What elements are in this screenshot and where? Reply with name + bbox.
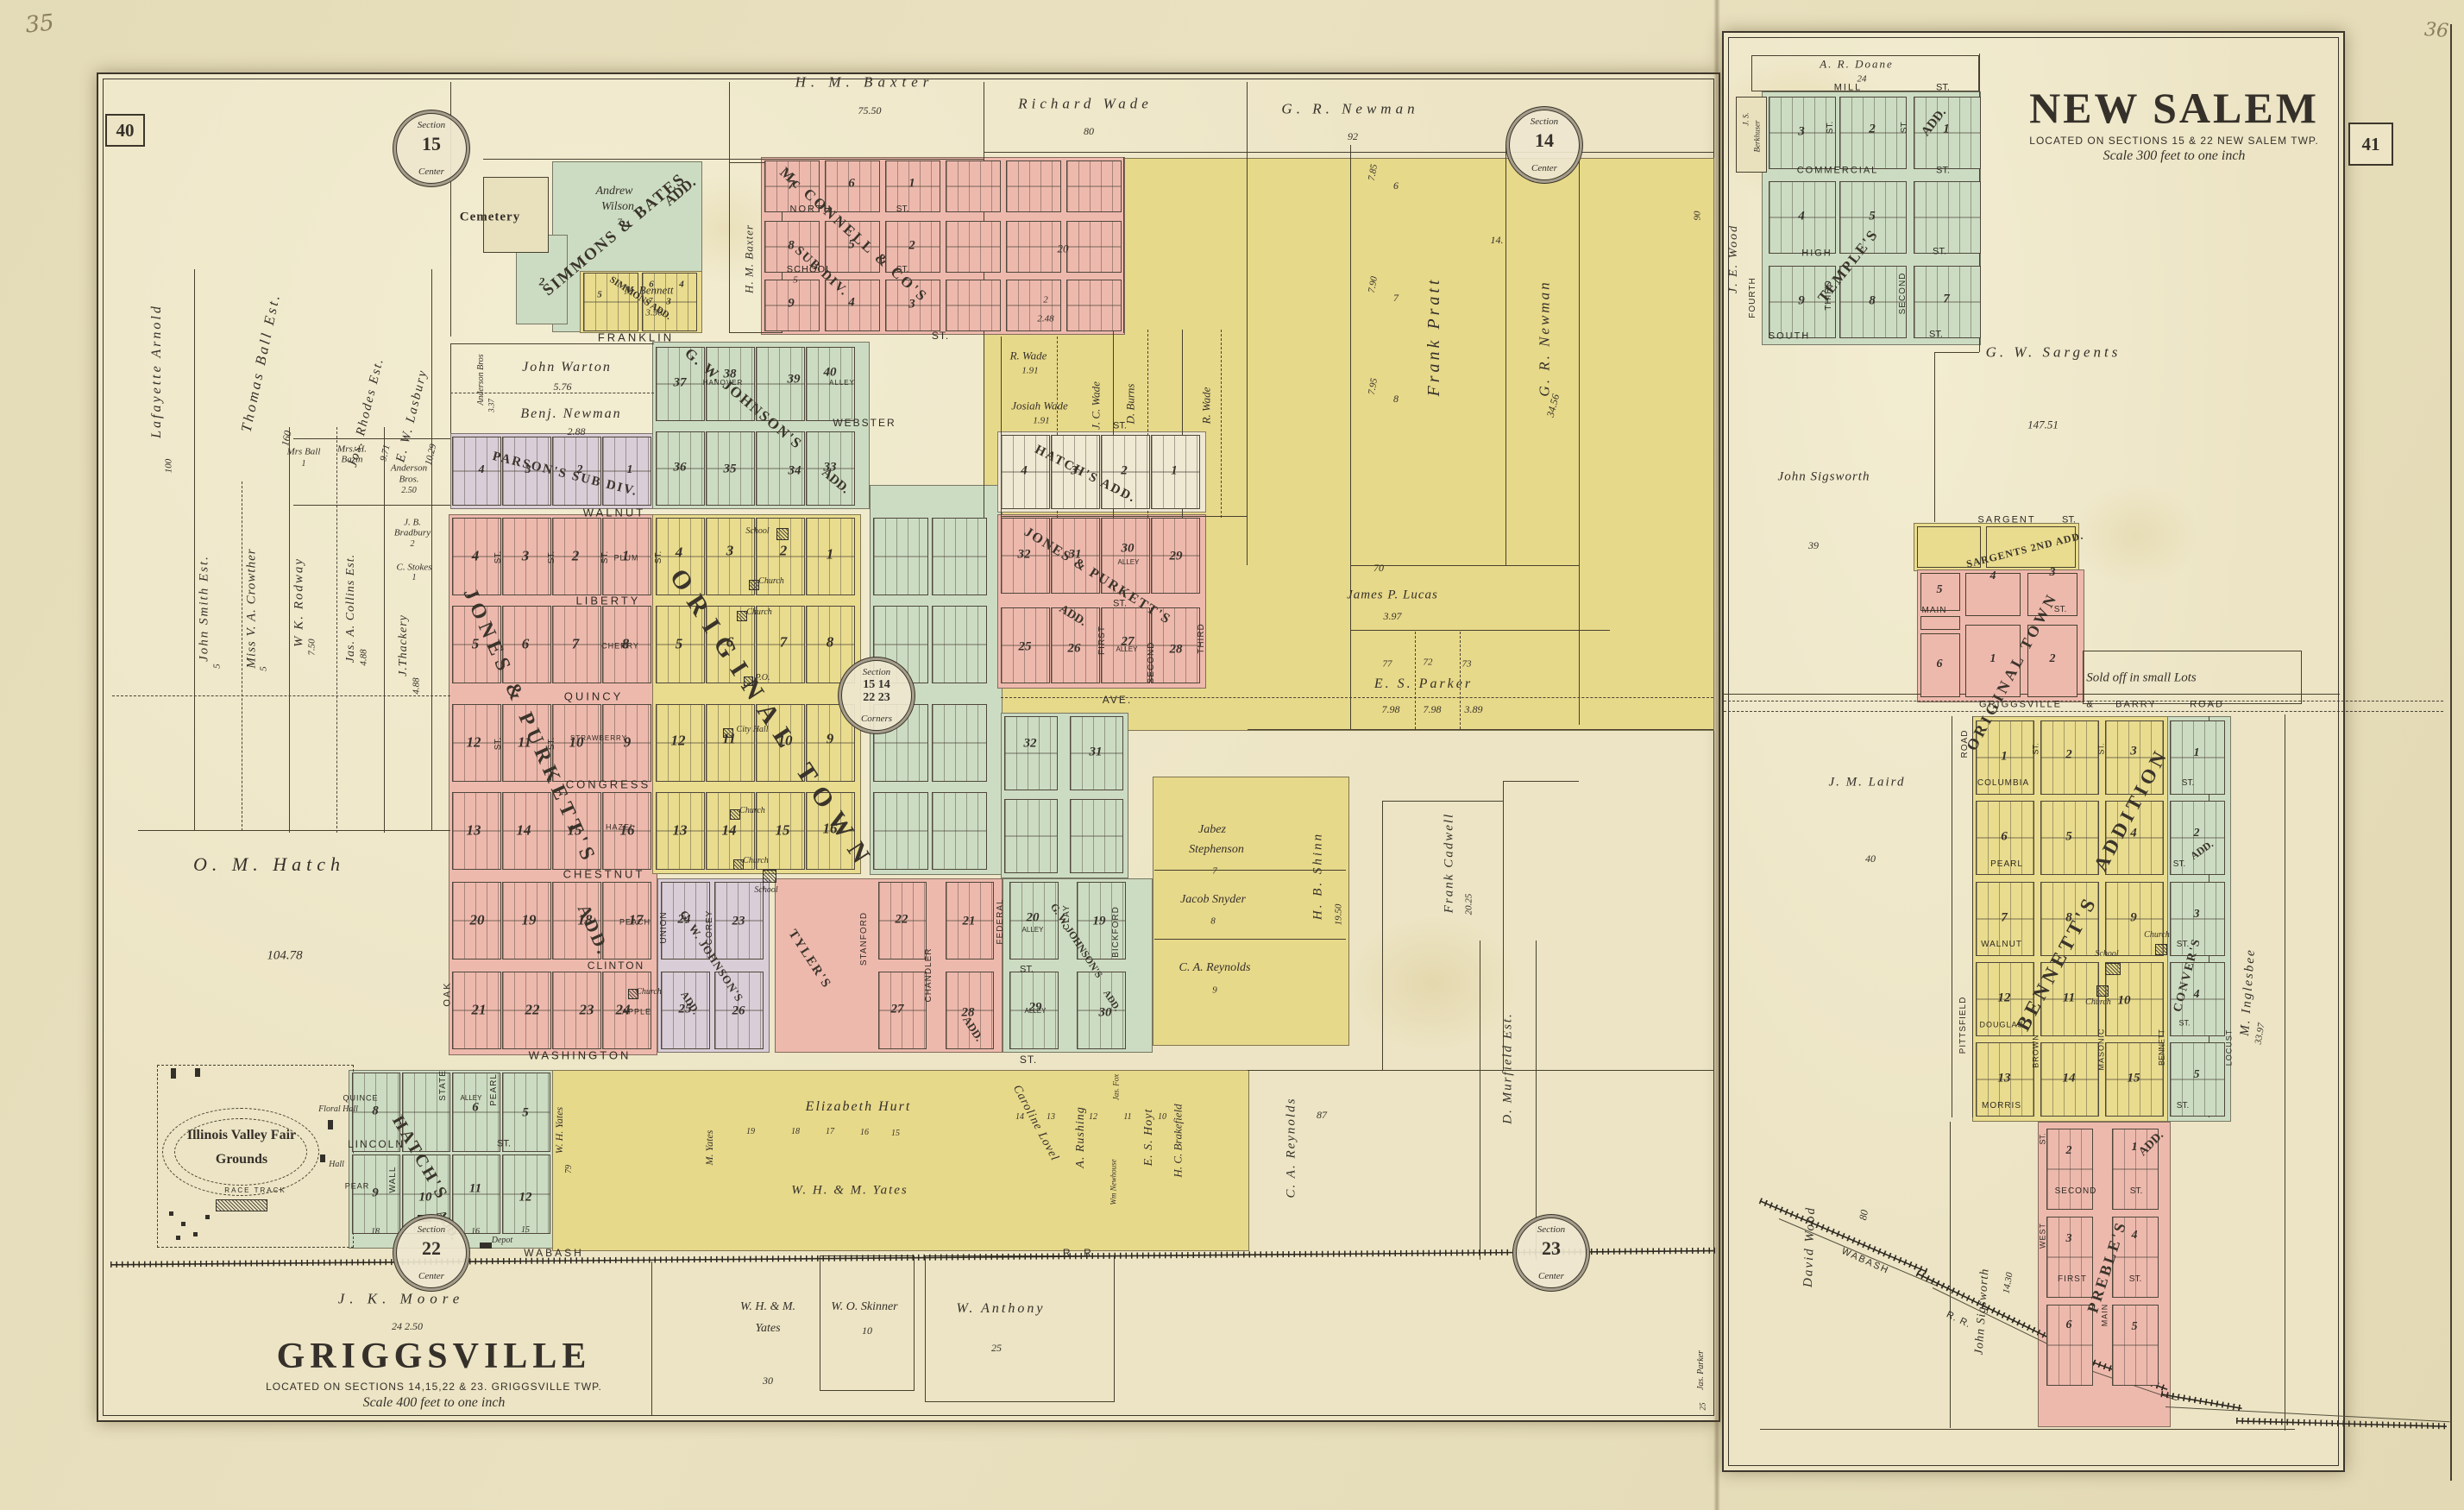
annotation-label: Bradbury <box>394 529 431 538</box>
boundary-line <box>1934 352 1935 522</box>
boundary-line <box>1724 711 2443 713</box>
parcel-berkhuser-parcel <box>1736 97 1767 173</box>
street-label: WEST <box>2040 1223 2047 1249</box>
annotation-label: Church <box>739 807 765 815</box>
street-label: ST. <box>655 551 663 563</box>
blocks-parsons <box>452 437 501 506</box>
block-number: 8 <box>372 1105 379 1118</box>
blocks-preble <box>2046 1217 2093 1298</box>
block-number: 4 <box>479 464 485 476</box>
block-number: 8 <box>1869 295 1876 308</box>
block-number: 5 <box>472 637 480 651</box>
boundary-line <box>1351 630 1610 631</box>
block-number: 23 <box>732 915 745 928</box>
owner-label: Yates <box>755 1323 780 1335</box>
block-number: 8 <box>827 635 834 650</box>
acreage-label: 12 <box>1089 1113 1097 1122</box>
street-label: STATE <box>439 1070 448 1101</box>
block-number: 1 <box>2001 751 2008 764</box>
acreage-label: 4.88 <box>360 649 369 665</box>
acreage-label: 90 <box>1694 211 1703 221</box>
block-number: 30 <box>1122 543 1135 556</box>
blocks-preble <box>2046 1305 2093 1386</box>
acreage-label: 5.76 <box>554 381 572 392</box>
street-label: PITTSFIELD <box>1959 997 1968 1054</box>
boundary-line <box>1972 716 1973 1117</box>
street-label: MORRIS <box>1982 1102 2021 1110</box>
acreage-label: 1.91 <box>1033 417 1049 426</box>
boundary-line <box>1221 330 1223 518</box>
acreage-label: 13 <box>1047 1113 1055 1122</box>
section-marker: Section15Center <box>396 113 467 184</box>
block-number: 9 <box>1798 295 1805 308</box>
blocks-preble <box>2046 1129 2093 1210</box>
handwritten-folio-right: 36 <box>2423 21 2448 41</box>
annotation-label: Mrs. H. <box>337 445 367 455</box>
owner-label: A. Rushing <box>1075 1106 1087 1167</box>
blocks-mcconnell <box>946 221 1001 273</box>
street-label: ST. <box>601 551 610 563</box>
acreage-label: 25 <box>991 1343 1002 1353</box>
boundary-line <box>1934 352 1979 353</box>
griggsville-subtitle: LOCATED ON SECTIONS 14,15,22 & 23. GRIGG… <box>266 1381 602 1393</box>
owner-label: Benj. Newman <box>520 407 621 421</box>
page-trim-line <box>2450 24 2452 1481</box>
block-number: 4 <box>1021 465 1028 478</box>
owner-label: J. C. Wade <box>1091 381 1102 430</box>
acreage-label: 2.88 <box>568 426 586 437</box>
block-number: 3 <box>2066 1233 2072 1245</box>
street-label: ST. <box>896 205 908 214</box>
owner-label: Frank Cadwell <box>1443 813 1456 913</box>
section-marker-text: Section <box>397 120 466 130</box>
street-label: STANFORD <box>860 912 869 966</box>
block-number: 38 <box>724 368 737 381</box>
blocks-mcconnell <box>946 160 1001 212</box>
block-number: 9 <box>624 735 632 750</box>
block-number: 12 <box>519 1192 532 1205</box>
acreage-label: 147.51 <box>2027 419 2059 431</box>
building-marker <box>216 1199 267 1211</box>
street-label: HIGH <box>1801 249 1832 259</box>
owner-label: R. Wade <box>1201 387 1212 425</box>
section-marker-text: 23 <box>1517 1237 1586 1260</box>
block-number: 11 <box>2063 992 2075 1005</box>
owner-label: M. Yates <box>704 1130 714 1166</box>
section-marker-text: Section <box>1517 1224 1586 1235</box>
street-label: ST. <box>2062 516 2076 525</box>
street-label: MAIN <box>1922 607 1947 615</box>
acreage-label: 79 <box>565 1165 574 1173</box>
block-number: 27 <box>1122 636 1135 649</box>
street-label: FRANKLIN <box>598 332 674 343</box>
building-solid <box>193 1232 198 1236</box>
blocks-mcconnell <box>946 280 1001 331</box>
owner-label: Jacob Snyder <box>1180 894 1246 906</box>
street-label: ST. <box>2130 1187 2142 1196</box>
boundary-line <box>112 695 450 697</box>
block-number: 14 <box>722 823 737 838</box>
block-number: 15 <box>776 823 790 838</box>
block-number: 22 <box>525 1003 540 1017</box>
acreage-label: 75.50 <box>858 105 882 116</box>
block-number: 9 <box>2130 912 2137 925</box>
boundary-line <box>194 269 195 830</box>
block-number: 4 <box>676 545 683 560</box>
owner-label: H. M. Baxter <box>744 224 755 293</box>
acreage-label: 14. <box>1491 235 1504 245</box>
section-marker-text: 14 <box>1510 129 1579 152</box>
boundary-line <box>1123 157 1124 333</box>
owner-label: H. B. Shinn <box>1312 832 1325 920</box>
boundary-line <box>1503 781 1579 782</box>
street-label: QUINCE <box>343 1095 378 1103</box>
place-label: Cemetery <box>460 211 520 224</box>
annotation-label: City Hall <box>737 726 769 734</box>
acreage-label: 19.50 <box>1335 904 1344 926</box>
acreage-label: 39 <box>1808 540 1819 551</box>
block-number: 11 <box>518 735 531 750</box>
annotation-label: Church <box>743 857 769 865</box>
acreage-label: 104.78 <box>267 950 302 963</box>
owner-label: Miss V. A. Crowther <box>246 548 259 668</box>
acreage-label: 70 <box>1373 563 1384 573</box>
section-marker-text: 15 <box>397 133 466 155</box>
block-number: 3 <box>666 298 671 307</box>
street-label: BICKFORD <box>1112 906 1121 958</box>
acreage-label: 5 <box>260 666 269 671</box>
building-solid <box>320 1155 325 1162</box>
annotation-label: Floral Hall <box>318 1105 358 1114</box>
block-number: 5 <box>1937 584 1943 596</box>
boundary-line <box>1760 1429 2295 1430</box>
building-solid <box>176 1236 180 1240</box>
street-label: CHANDLER <box>925 947 933 1002</box>
owner-label: C. A. Reynolds <box>1285 1098 1298 1199</box>
owner-label: Jas. A. Collins Est. <box>345 554 357 663</box>
street-label: ST. <box>2182 779 2194 788</box>
acreage-label: 7 <box>1212 867 1217 877</box>
street-label: CHESTNUT <box>563 869 645 880</box>
annotation-label: C. Stokes <box>397 563 432 573</box>
street-label: PEAR <box>345 1183 370 1191</box>
block-number: 13 <box>467 823 481 838</box>
page-gutter <box>1713 0 1720 1510</box>
block-number: 13 <box>673 823 688 838</box>
block-number: 1 <box>1990 653 1996 665</box>
place-label: Grounds <box>216 1153 267 1167</box>
street-label: FIRST <box>1098 626 1107 655</box>
block-number: 24 <box>678 914 691 927</box>
block-number: 36 <box>674 462 687 475</box>
street-label: ST. <box>1826 122 1835 134</box>
paper-stain <box>1346 915 1518 1053</box>
street-label: ST. <box>1113 422 1127 431</box>
street-label: PEARL <box>490 1073 499 1106</box>
acreage-label: 92 <box>1348 131 1358 142</box>
annotation-label: Anderson Bros <box>477 354 486 405</box>
building-marker <box>2096 985 2109 997</box>
block-number: 1 <box>2132 1142 2138 1154</box>
owner-label: J. K. Moore <box>338 1292 465 1306</box>
street-label: ST. <box>1936 167 1950 176</box>
acreage-label: 73 <box>1462 660 1472 670</box>
section-marker-text: Section <box>842 667 911 677</box>
acreage-label: 6 <box>1393 180 1399 191</box>
acreage-label: 4.88 <box>412 677 422 694</box>
section-marker: Section23Center <box>1516 1217 1587 1288</box>
owner-label: W. H. & M. <box>740 1301 795 1313</box>
block-number: 2 <box>2066 1145 2072 1157</box>
block-number: 7 <box>2001 912 2008 925</box>
boundary-line <box>1950 1122 1951 1428</box>
place-label: Illinois Valley Fair <box>187 1129 296 1142</box>
section-marker-text: Section <box>397 1224 466 1235</box>
acreage-label: 2.48 <box>1037 315 1053 324</box>
section-marker: Section22Center <box>396 1217 467 1288</box>
acreage-label: 1.91 <box>1021 367 1038 376</box>
block-number: 2 <box>780 544 788 558</box>
block-number: 3 <box>2050 567 2056 579</box>
block-number: 22 <box>896 914 908 927</box>
annotation-label: J. S. <box>1743 112 1751 125</box>
annotation-label: Hall <box>329 1161 344 1169</box>
owner-label: W. H. Yates <box>554 1107 564 1154</box>
block-number: 6 <box>649 280 654 290</box>
section-marker-text: 22 <box>397 1237 466 1260</box>
block-number: 4 <box>472 549 480 563</box>
block-number: 15 <box>568 823 582 838</box>
acreage-label: 72 <box>1424 658 1433 668</box>
boundary-line <box>293 505 450 506</box>
boundary-line <box>1247 82 1248 565</box>
street-label: WASHINGTON <box>529 1050 632 1061</box>
owner-label: H. C. Brakefield <box>1172 1104 1184 1177</box>
acreage-label: 2 <box>1043 296 1048 305</box>
owner-label: G. W. Sargents <box>1986 345 2121 360</box>
block-number: 4 <box>2132 1230 2138 1242</box>
boundary-line <box>1248 729 1713 730</box>
owner-label: E. S. Hoyt <box>1143 1109 1155 1167</box>
block-number: 12 <box>1998 992 2011 1005</box>
block-number: 40 <box>824 367 837 380</box>
griggsville-title: GRIGGSVILLE <box>266 1336 602 1377</box>
annotation-label: 2 <box>411 540 415 549</box>
block-number: 20 <box>470 913 485 928</box>
owner-label: G. R. Newman <box>1281 102 1418 116</box>
new-salem-title: NEW SALEM <box>2010 83 2338 133</box>
block-number: 7 <box>1943 293 1950 306</box>
block-number: 17 <box>629 913 644 928</box>
boundary-line <box>431 269 432 830</box>
block-number: 20 <box>1027 912 1040 925</box>
block-number: 1 <box>908 178 915 191</box>
block-number: 2 <box>577 464 583 476</box>
acreage-label: 77 <box>1383 660 1392 670</box>
block-number: 14 <box>2063 1073 2076 1085</box>
block-number: 5 <box>522 1107 529 1120</box>
block-number: 8 <box>622 637 630 651</box>
street-label: RACE TRACK <box>224 1187 286 1194</box>
annotation-label: Bros. <box>399 475 418 485</box>
owner-label: Stephenson <box>1189 844 1244 856</box>
acreage-label: 8 <box>1393 393 1399 404</box>
block-number: 4 <box>679 280 684 290</box>
block-number: 16 <box>823 821 838 836</box>
street-label: & <box>2086 701 2092 710</box>
building-solid <box>171 1068 176 1079</box>
block-number: 21 <box>472 1003 487 1017</box>
street-label: ST. <box>494 738 503 750</box>
block-number: 18 <box>578 913 593 928</box>
blocks-temple <box>1914 181 1981 254</box>
block-number: 4 <box>848 297 855 310</box>
street-label: ST. <box>2129 1275 2141 1284</box>
block-number: 2 <box>539 276 545 287</box>
block-number: 7 <box>780 635 788 650</box>
street-label: ALLEY <box>1022 927 1044 934</box>
street-label: ST. <box>932 330 949 341</box>
boundary-line <box>1505 145 1506 565</box>
owner-label: W. O. Skinner <box>831 1301 897 1313</box>
blocks-mcconnell <box>1066 280 1122 331</box>
section-marker-text: Center <box>1517 1271 1586 1281</box>
street-label: ST. <box>2040 1133 2047 1144</box>
annotation-label: School <box>745 527 769 536</box>
street-label: SARGENT <box>1977 516 2035 525</box>
block-number: 32 <box>1018 549 1031 562</box>
acreage-label: 7.50 <box>308 639 317 655</box>
owner-label: J. M. Laird <box>1829 777 1906 790</box>
street-label: ST. <box>1901 121 1909 133</box>
owner-label: W. Anthony <box>957 1302 1046 1316</box>
building-marker <box>763 870 776 883</box>
boundary-line <box>242 481 243 831</box>
owner-label: Jabez <box>1198 824 1226 836</box>
annotation-label: 2.50 <box>401 487 417 495</box>
block-number: 33 <box>824 462 837 475</box>
owner-label: W. H. & M. Yates <box>791 1185 908 1198</box>
boundary-line <box>1536 941 1537 1260</box>
acreage-label: 10 <box>862 1325 872 1336</box>
atlas-page: 35 36 40 41 GRIGGSVILLE LOCATED ON SECTI… <box>0 0 2464 1510</box>
block-number: 16 <box>620 823 635 838</box>
street-label: PEARL <box>1990 860 2023 869</box>
block-number: 2 <box>2050 653 2056 665</box>
block-number: 1 <box>2194 747 2200 759</box>
block-number: 31 <box>1069 549 1082 562</box>
owner-label: Elizabeth Hurt <box>806 1100 912 1114</box>
acreage-label: 24 2.50 <box>392 1321 423 1331</box>
street-label: CONGRESS <box>566 779 651 790</box>
blocks-mid-green <box>932 704 987 782</box>
blocks-below-ave <box>1004 716 1058 790</box>
block-number: 8 <box>2065 912 2072 925</box>
street-label: SECOND <box>1147 642 1156 684</box>
acreage-label: 40 <box>1865 853 1876 864</box>
owner-label: John Sigsworth <box>1778 471 1870 484</box>
owner-label: C. A. Reynolds <box>1179 962 1251 974</box>
block-number: 32 <box>1024 738 1037 751</box>
street-label: R. R. <box>1063 1248 1099 1258</box>
annotation-label: P.O. <box>755 674 770 683</box>
acreage-label: 10 <box>1158 1113 1166 1122</box>
street-label: ST. <box>2098 743 2106 754</box>
block-number: 37 <box>674 377 687 390</box>
section-marker-text: 15 1422 23 <box>842 678 911 705</box>
section-marker-text: Center <box>1510 163 1579 173</box>
street-label: ST. <box>1020 1054 1037 1065</box>
owner-label: O. M. Hatch <box>193 855 345 874</box>
block-number: 29 <box>1170 551 1183 563</box>
street-label: GRIGGSVILLE <box>1979 701 2062 710</box>
street-label: FEDERAL <box>996 898 1005 944</box>
acreage-label: 30 <box>763 1375 773 1386</box>
annotation-label: Wm Newhouse <box>1110 1159 1118 1205</box>
building-marker <box>2155 944 2167 955</box>
block-number: 4 <box>2194 989 2200 1001</box>
acreage-label: 16 <box>860 1129 869 1137</box>
block-number: 28 <box>962 1007 975 1020</box>
boundary-line <box>1480 941 1480 1260</box>
building-solid <box>195 1068 200 1077</box>
annotation-label: Bazin <box>341 456 362 465</box>
street-label: BROWN <box>2033 1034 2040 1068</box>
acreage-label: 80 <box>1084 126 1094 136</box>
blocks-mid-green <box>932 518 987 595</box>
block-number: 10 <box>2118 995 2131 1008</box>
annotation-label: Church <box>746 608 772 617</box>
boundary-line <box>1154 939 1346 940</box>
street-label: BENNETT <box>2159 1029 2166 1066</box>
owner-label: John Smith Est. <box>198 555 211 662</box>
street-label: ROAD <box>2190 701 2224 710</box>
block-number: 2 <box>908 240 915 253</box>
owner-label: Richard Wade <box>1018 97 1153 111</box>
acreage-label: 15 <box>521 1226 530 1235</box>
boundary-line <box>1351 565 1579 566</box>
new-salem-title-block: NEW SALEM LOCATED ON SECTIONS 15 & 22 NE… <box>2010 83 2338 164</box>
acreage-label: 100 <box>165 459 174 474</box>
blocks-below-ave <box>1004 799 1058 873</box>
acreage-label: 3.89 <box>1465 704 1483 714</box>
annotation-label: J. B. <box>404 519 421 528</box>
blocks-preble <box>2112 1305 2159 1386</box>
block-number: 5 <box>2132 1321 2138 1333</box>
annotation-label: Jas. Parker <box>1697 1350 1706 1390</box>
block-number: 1 <box>622 549 630 563</box>
boundary-line <box>984 152 1713 153</box>
block-number: 7 <box>572 637 580 651</box>
block-number: 26 <box>1068 643 1081 656</box>
owner-label: A. R. Doane <box>1820 59 1894 70</box>
street-label: ST. <box>2177 1102 2189 1110</box>
block-number: 9 <box>827 732 834 746</box>
annotation-label: Church <box>2144 931 2170 940</box>
acreage-label: 15 <box>891 1129 900 1138</box>
street-label: LIBERTY <box>576 595 641 607</box>
page-number-left: 40 <box>105 114 145 147</box>
street-label: OAK <box>443 981 453 1006</box>
owner-label: H. M. Baxter <box>795 75 934 90</box>
griggsville-title-block: GRIGGSVILLE LOCATED ON SECTIONS 14,15,22… <box>266 1336 602 1411</box>
street-label: UNION <box>660 911 669 943</box>
annotation-label: Anderson <box>391 464 427 474</box>
block-number: 21 <box>963 915 976 928</box>
block-number: 3 <box>2130 746 2137 758</box>
annotation-label: 3.37 <box>488 399 496 412</box>
street-label: MASONIC <box>2098 1028 2106 1070</box>
